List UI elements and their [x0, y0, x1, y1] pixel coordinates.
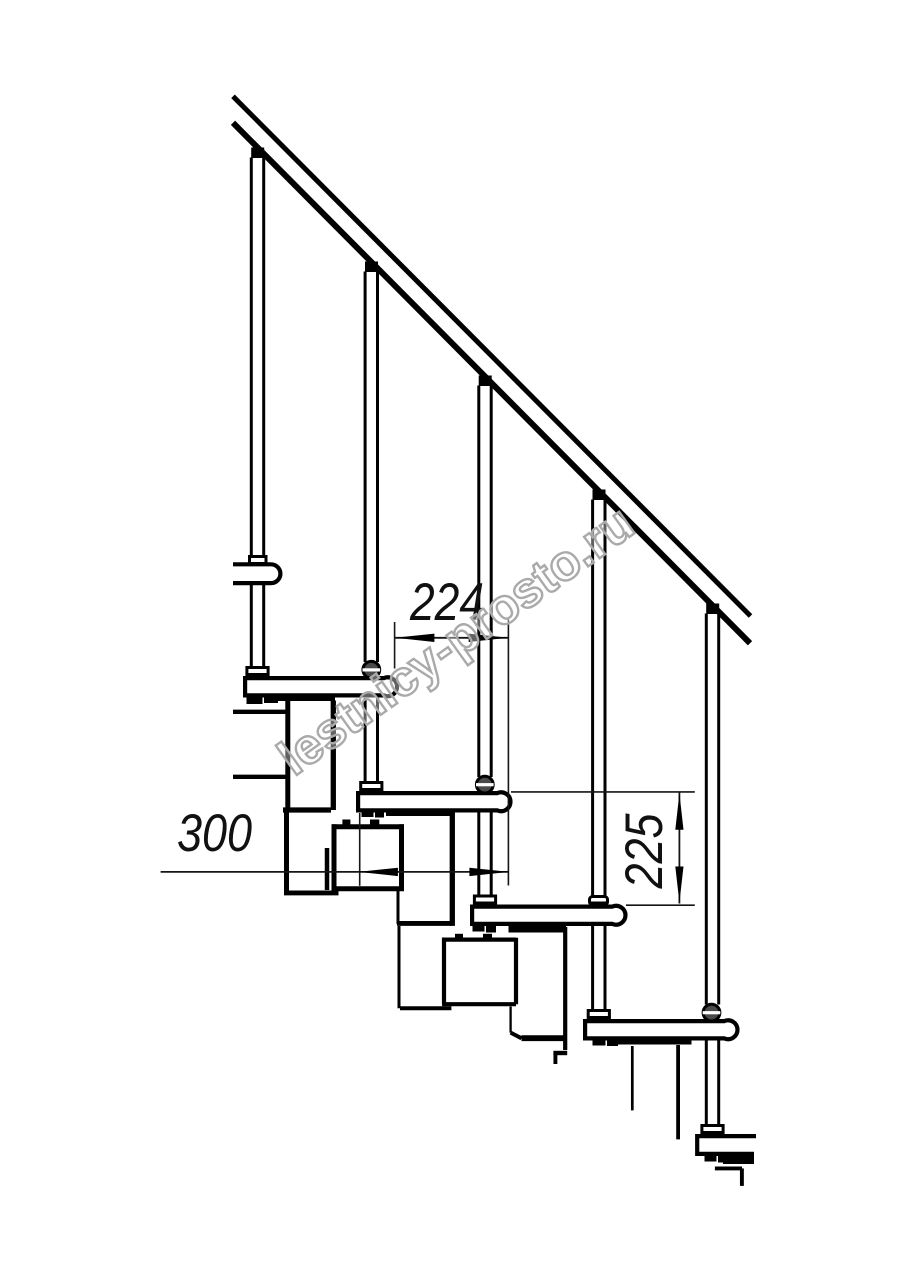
svg-text:300: 300 [177, 804, 252, 863]
svg-text:225: 225 [615, 813, 674, 889]
svg-text:lestnicy-prosto.ru: lestnicy-prosto.ru [268, 495, 644, 786]
